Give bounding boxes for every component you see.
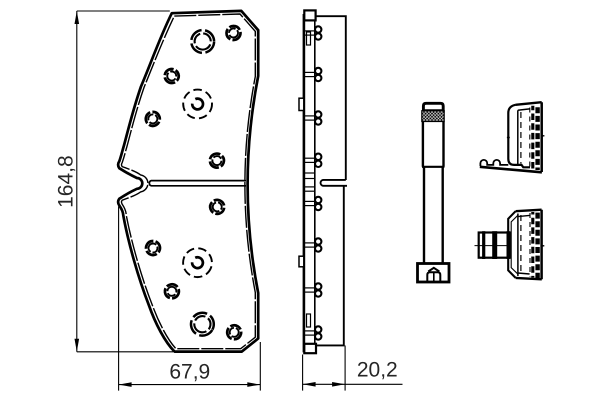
svg-text:67,9: 67,9 [169,360,210,383]
svg-text:164,8: 164,8 [55,155,78,208]
svg-text:20,2: 20,2 [357,358,398,381]
